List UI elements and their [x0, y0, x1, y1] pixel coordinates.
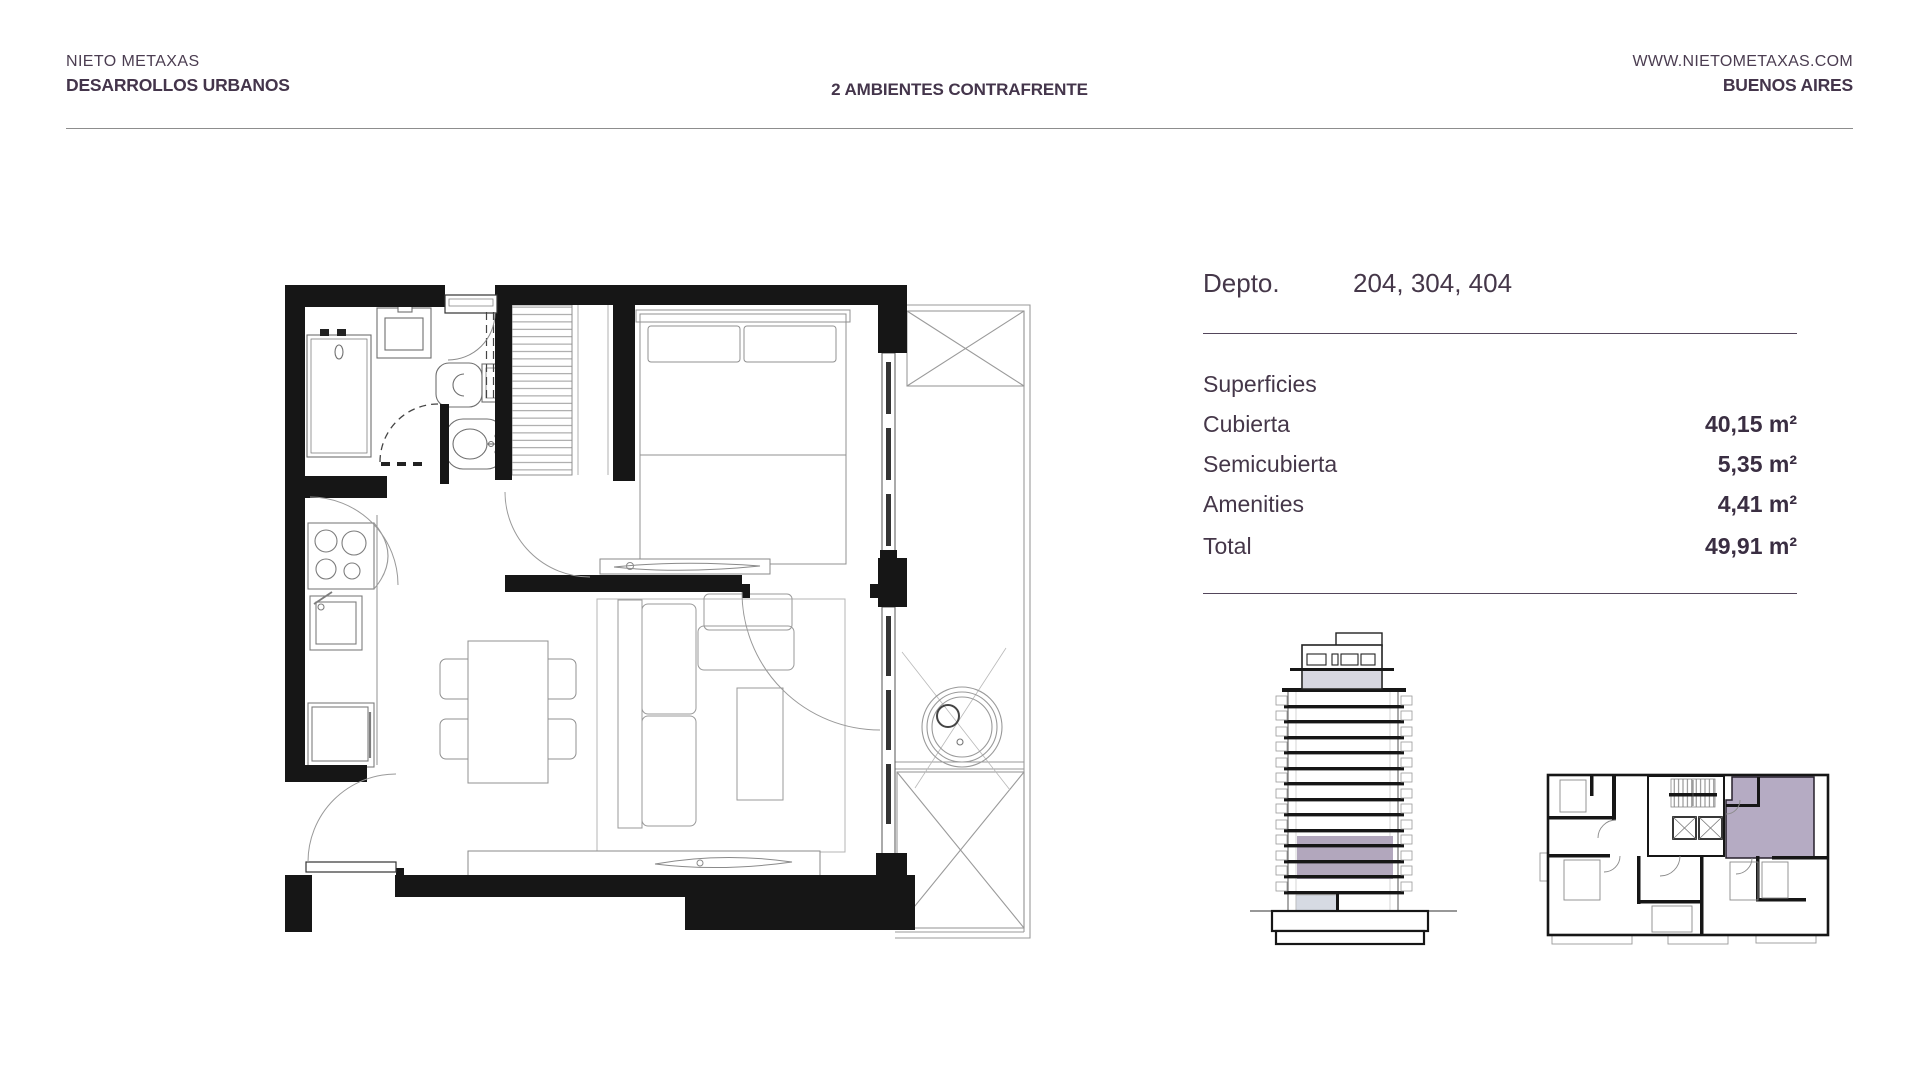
highlighted-floors [1297, 836, 1393, 879]
stair-core [1648, 776, 1724, 856]
living-furniture [597, 594, 845, 852]
balcony-table [922, 687, 1002, 767]
balcony [895, 305, 1030, 938]
shower [307, 329, 371, 457]
rooftop [1290, 633, 1394, 689]
kitchen [308, 515, 388, 767]
toilet [436, 363, 502, 407]
highlighted-unit [1726, 777, 1814, 858]
dining-set [440, 641, 576, 783]
entry-threshold [445, 295, 497, 313]
kitchen-sink [310, 592, 362, 650]
key-plan-drawing [1540, 775, 1828, 944]
entry-door-leaf [306, 862, 396, 872]
floor-plan-drawing [285, 285, 1030, 938]
oven [308, 703, 374, 767]
building-elevation-drawing [1250, 633, 1457, 944]
rug [597, 599, 845, 852]
architectural-drawings [0, 0, 1919, 1079]
cooktop [308, 523, 388, 589]
bedroom-tv-shelf [600, 559, 770, 574]
walls [285, 285, 915, 932]
windows [882, 353, 895, 862]
entrance [1296, 895, 1338, 911]
bathroom [307, 297, 506, 470]
bathroom-door-leaf [440, 404, 449, 484]
bed [636, 310, 850, 564]
wardrobe [512, 305, 608, 475]
tv-console [468, 851, 820, 876]
brochure-page: NIETO METAXAS DESARROLLOS URBANOS 2 AMBI… [0, 0, 1919, 1079]
podium [1272, 911, 1428, 944]
